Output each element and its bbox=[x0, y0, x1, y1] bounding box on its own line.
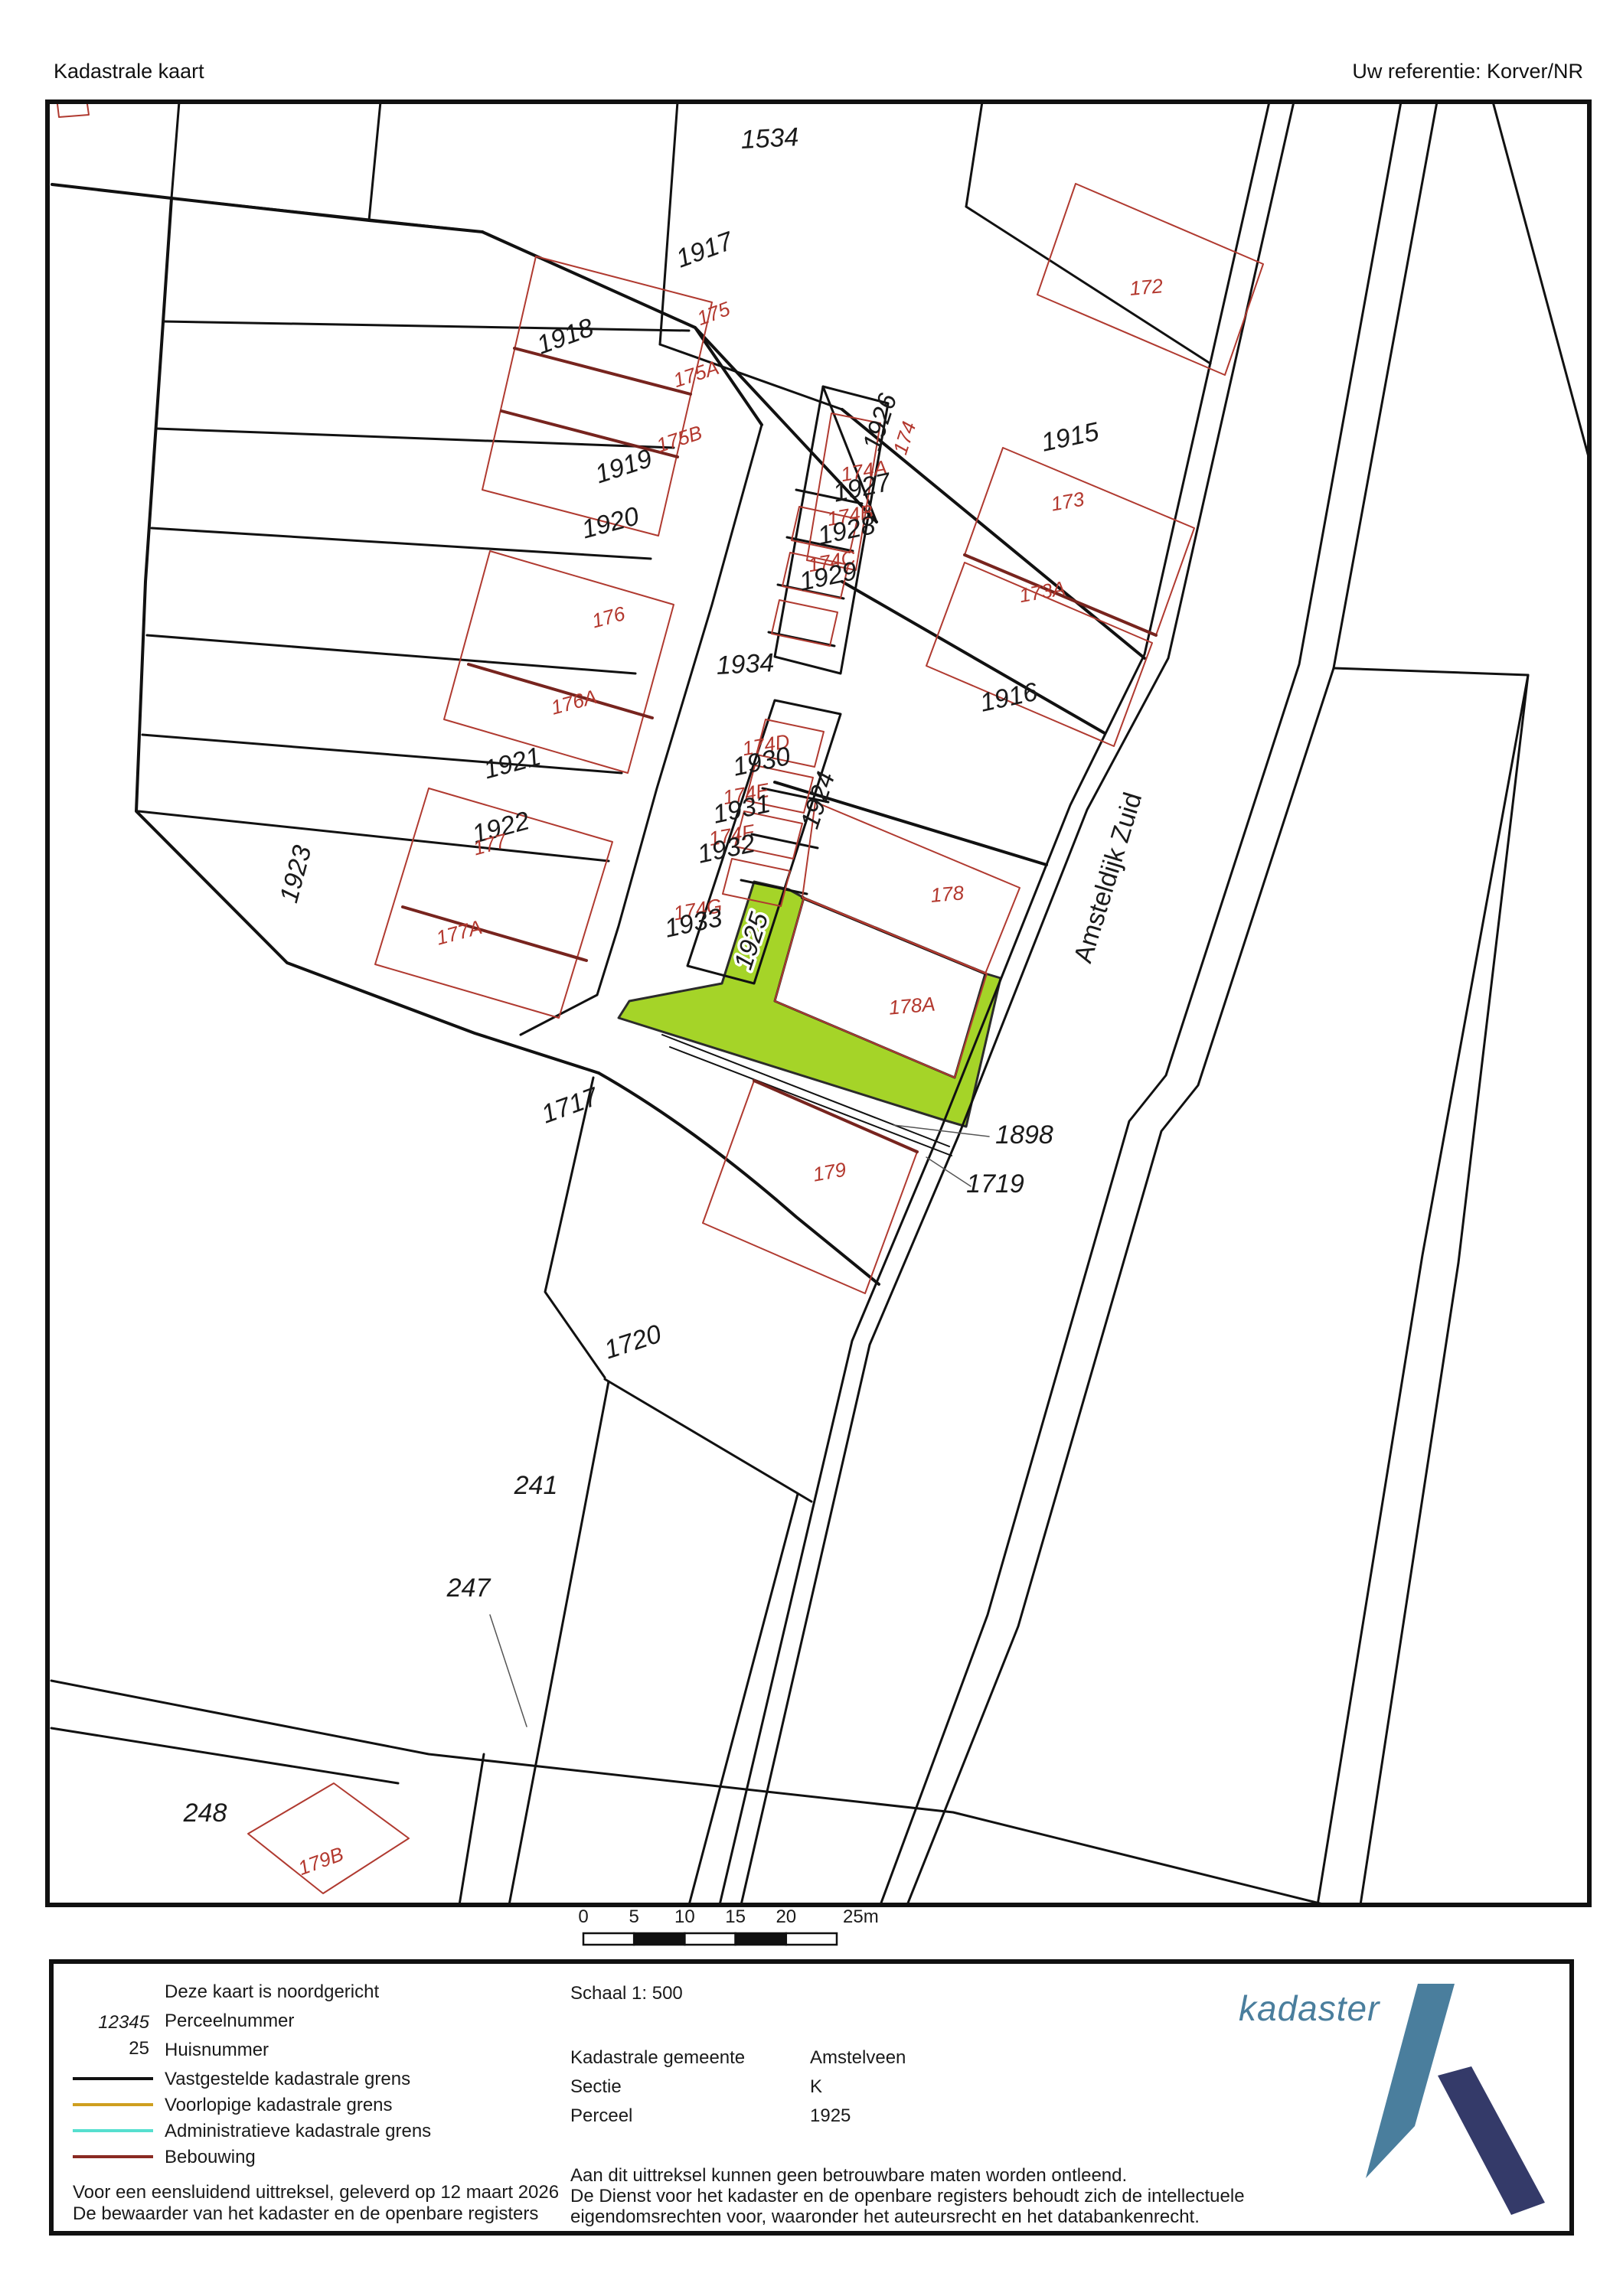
house-number-label: 178A bbox=[888, 992, 936, 1019]
scale-bar-segment bbox=[583, 1933, 634, 1945]
field-value: Amstelveen bbox=[810, 2047, 906, 2068]
scale-tick-label: 10 bbox=[674, 1906, 695, 1927]
field-label: Perceel bbox=[570, 2105, 632, 2126]
parcel-number-label: 241 bbox=[514, 1471, 558, 1500]
legend-line-label: Administratieve kadastrale grens bbox=[165, 2121, 431, 2141]
sample-parcel-number: 12345 bbox=[98, 2012, 149, 2033]
scale-tick-label: 0 bbox=[578, 1906, 588, 1927]
scale-text: Schaal 1: 500 bbox=[570, 1983, 683, 2004]
parcel-number-label: 1534 bbox=[740, 122, 800, 155]
delivery-line-2: De bewaarder van het kadaster en de open… bbox=[73, 2203, 538, 2224]
north-note: Deze kaart is noordgericht bbox=[165, 1981, 379, 2002]
scale-bar-segment bbox=[634, 1933, 684, 1945]
disclaimer-line: Aan dit uittreksel kunnen geen betrouwba… bbox=[570, 2165, 1127, 2186]
scale-tick-label: 20 bbox=[776, 1906, 796, 1927]
legend-line-label: Vastgestelde kadastrale grens bbox=[165, 2069, 410, 2089]
cadastral-extract-page: Kadastrale kaart Uw referentie: Korver/N… bbox=[0, 0, 1623, 2296]
parcel-number-label: 248 bbox=[183, 1799, 227, 1828]
scale-end-label: 25m bbox=[843, 1906, 879, 1927]
parcel-number-label: 1934 bbox=[716, 648, 776, 680]
field-value: 1925 bbox=[810, 2105, 851, 2126]
delivery-line-1: Voor een eensluidend uittreksel, gelever… bbox=[73, 2182, 559, 2203]
disclaimer-line: De Dienst voor het kadaster en de openba… bbox=[570, 2186, 1245, 2206]
legend-line-label: Voorlopige kadastrale grens bbox=[165, 2095, 393, 2115]
kadaster-logo-text: kadaster bbox=[1239, 1988, 1380, 2028]
scale-bar: 0510152025m bbox=[578, 1906, 878, 1945]
scale-bar-segment bbox=[736, 1933, 786, 1945]
cadastral-map[interactable]: 153419171751918175A175B19191920176176A19… bbox=[0, 0, 1623, 2296]
parcel-number-label: 1898 bbox=[995, 1120, 1053, 1150]
scale-tick-label: 15 bbox=[725, 1906, 746, 1927]
scale-bar-segment bbox=[786, 1933, 837, 1945]
legend-line-label: Bebouwing bbox=[165, 2147, 256, 2167]
parcel-number-label: 1719 bbox=[966, 1169, 1024, 1199]
house-number-label: 172 bbox=[1128, 274, 1164, 300]
house-number-label: 178 bbox=[929, 881, 965, 907]
legend-label-perceelnummer: Perceelnummer bbox=[165, 2011, 294, 2031]
field-value: K bbox=[810, 2076, 822, 2097]
parcel-number-label: 247 bbox=[446, 1574, 491, 1603]
disclaimer-line: eigendomsrechten voor, waaronder het aut… bbox=[570, 2206, 1200, 2227]
field-label: Kadastrale gemeente bbox=[570, 2047, 745, 2068]
sample-house-number: 25 bbox=[129, 2038, 149, 2059]
scale-bar-segment bbox=[684, 1933, 735, 1945]
map-frame bbox=[47, 102, 1589, 1905]
field-label: Sectie bbox=[570, 2076, 622, 2097]
scale-tick-label: 5 bbox=[629, 1906, 639, 1927]
legend-label-huisnummer: Huisnummer bbox=[165, 2040, 269, 2060]
